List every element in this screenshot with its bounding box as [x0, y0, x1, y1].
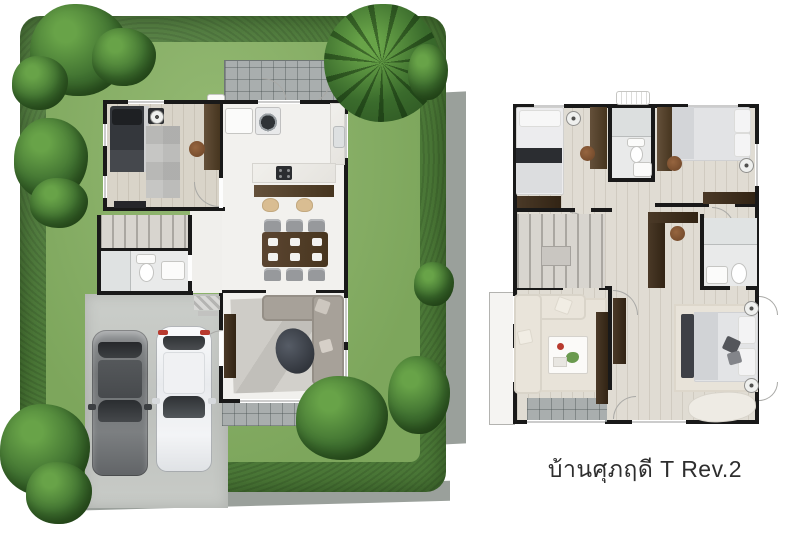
- nightstand: [744, 301, 759, 316]
- sofa-pillow: [517, 329, 534, 346]
- bathroom-sink: [633, 162, 652, 177]
- window: [632, 420, 686, 424]
- terrace-tiles: [527, 398, 607, 422]
- blanket-fold: [694, 312, 718, 380]
- wall-segment: [655, 203, 709, 207]
- tv-console: [596, 312, 608, 404]
- terrace-door: [527, 420, 605, 424]
- dresser: [613, 298, 626, 364]
- desk-chair: [580, 146, 595, 161]
- wall-segment: [746, 286, 759, 290]
- pillow: [734, 109, 751, 133]
- nightstand: [744, 378, 759, 393]
- pillow: [519, 110, 561, 127]
- tray: [553, 357, 567, 367]
- pillow: [738, 316, 756, 344]
- floor-plan-image: บ้านศุภฤดี T Rev.2: [0, 0, 800, 539]
- door-arc: [759, 382, 778, 401]
- blanket-fold: [516, 163, 562, 193]
- shower-area: [612, 108, 651, 137]
- plan-title: บ้านศุภฤดี T Rev.2: [545, 452, 745, 488]
- door-arc: [759, 296, 778, 315]
- closet: [648, 212, 665, 288]
- balcony: [489, 292, 515, 425]
- desk-chair: [667, 156, 682, 171]
- pillow: [734, 133, 751, 157]
- desk: [590, 107, 607, 169]
- toilet: [630, 146, 643, 163]
- wall-segment: [608, 290, 612, 390]
- flower-icon: [557, 343, 564, 350]
- stair-landing: [541, 246, 571, 266]
- headboard: [681, 314, 694, 378]
- fan-icon: [566, 111, 581, 126]
- wardrobe: [703, 192, 755, 204]
- toilet: [731, 263, 747, 284]
- dresser: [517, 196, 561, 208]
- study-desk: [648, 212, 698, 223]
- fan-icon: [739, 158, 754, 173]
- desk-chair: [670, 226, 685, 241]
- bathroom-sink: [706, 266, 728, 284]
- shower-area: [704, 218, 757, 245]
- bed-runner: [516, 148, 562, 163]
- ac-unit-icon: [616, 91, 650, 105]
- wall-segment: [700, 286, 730, 290]
- sofa: [514, 294, 542, 394]
- wall-segment: [513, 208, 575, 212]
- wall-segment: [608, 178, 655, 182]
- window: [755, 144, 759, 186]
- wall-segment: [591, 208, 612, 212]
